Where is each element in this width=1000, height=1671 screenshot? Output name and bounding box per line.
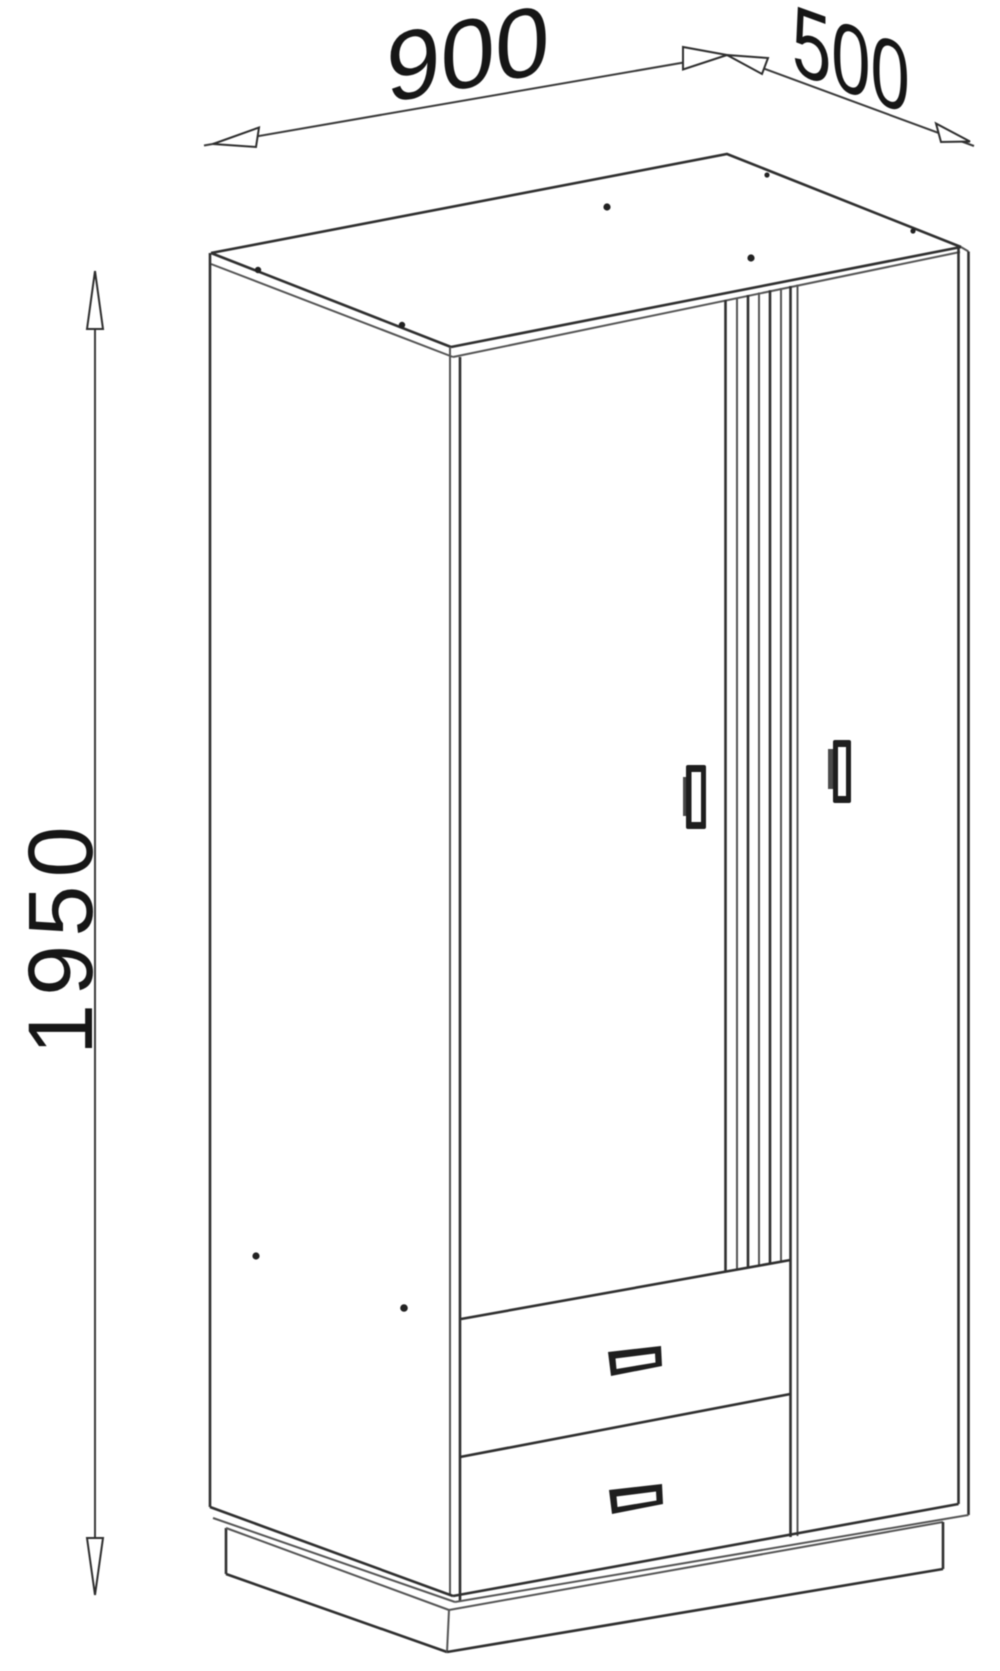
svg-text:1950: 1950	[10, 818, 112, 1055]
